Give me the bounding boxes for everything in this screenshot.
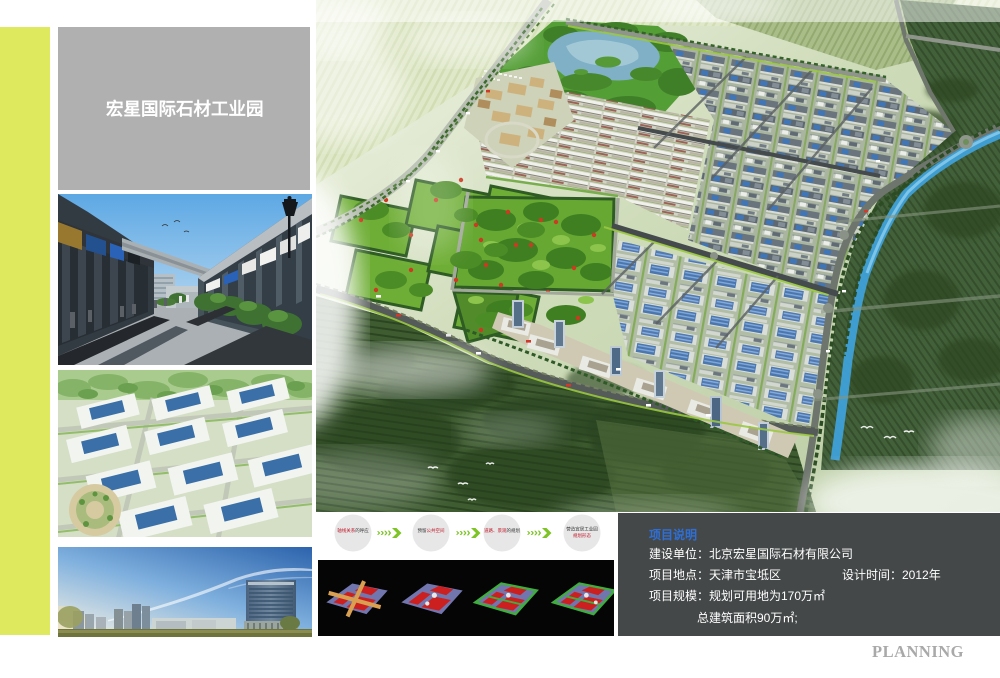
svg-text:预留公共空间: 预留公共空间 (418, 527, 445, 534)
svg-text:轴线关系的呼应: 轴线关系的呼应 (337, 527, 369, 534)
svg-text:规划形态: 规划形态 (573, 532, 591, 539)
svg-text:营造宜居工业园: 营造宜居工业园 (566, 526, 598, 533)
svg-text:道路、景观的规划: 道路、景观的规划 (484, 527, 520, 534)
